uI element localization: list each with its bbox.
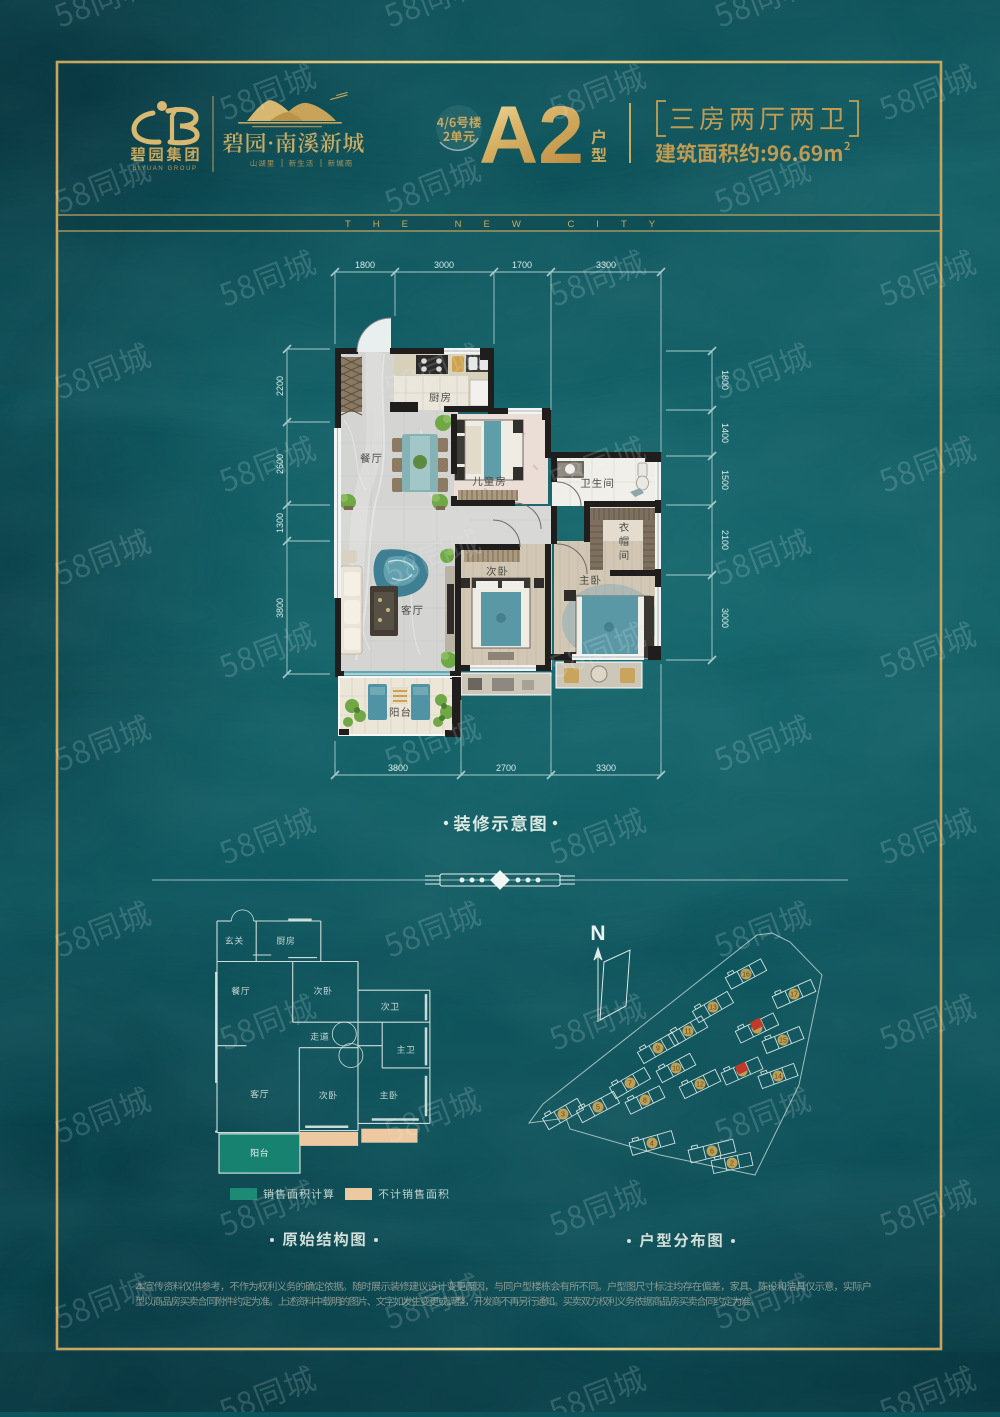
- svg-text:3: 3: [561, 1112, 565, 1119]
- svg-text:14: 14: [774, 1074, 782, 1081]
- svg-text:12: 12: [696, 1082, 704, 1089]
- svg-text:5: 5: [596, 1105, 600, 1112]
- svg-text:1300: 1300: [275, 513, 285, 533]
- svg-text:2200: 2200: [275, 376, 285, 396]
- svg-text:4: 4: [650, 1141, 654, 1148]
- svg-text:1700: 1700: [512, 260, 532, 270]
- svg-text:3800: 3800: [275, 598, 285, 618]
- svg-text:BIYUAN GROUP: BIYUAN GROUP: [132, 166, 197, 172]
- svg-text:13: 13: [709, 1005, 717, 1012]
- svg-text:1500: 1500: [720, 470, 730, 490]
- svg-text:2: 2: [730, 1161, 734, 1168]
- svg-text:THE NEW CITY: THE NEW CITY: [345, 219, 677, 230]
- svg-text:1800: 1800: [355, 260, 375, 270]
- svg-text:A2: A2: [479, 90, 584, 181]
- svg-text:10: 10: [672, 1066, 680, 1073]
- svg-text:17: 17: [790, 992, 798, 999]
- svg-text:16: 16: [742, 972, 750, 979]
- svg-text:3300: 3300: [596, 763, 616, 773]
- svg-text:15: 15: [779, 1038, 787, 1045]
- svg-text:8: 8: [643, 1098, 647, 1105]
- svg-text:3000: 3000: [434, 260, 454, 270]
- svg-text:6: 6: [710, 1149, 714, 1156]
- svg-text:2100: 2100: [720, 530, 730, 550]
- svg-text:3000: 3000: [720, 608, 730, 628]
- svg-text:7: 7: [628, 1081, 632, 1088]
- svg-text:11: 11: [684, 1029, 691, 1036]
- svg-text:9: 9: [656, 1046, 660, 1053]
- svg-text:1400: 1400: [720, 423, 730, 443]
- svg-text:2700: 2700: [496, 763, 516, 773]
- svg-text:N: N: [590, 922, 605, 945]
